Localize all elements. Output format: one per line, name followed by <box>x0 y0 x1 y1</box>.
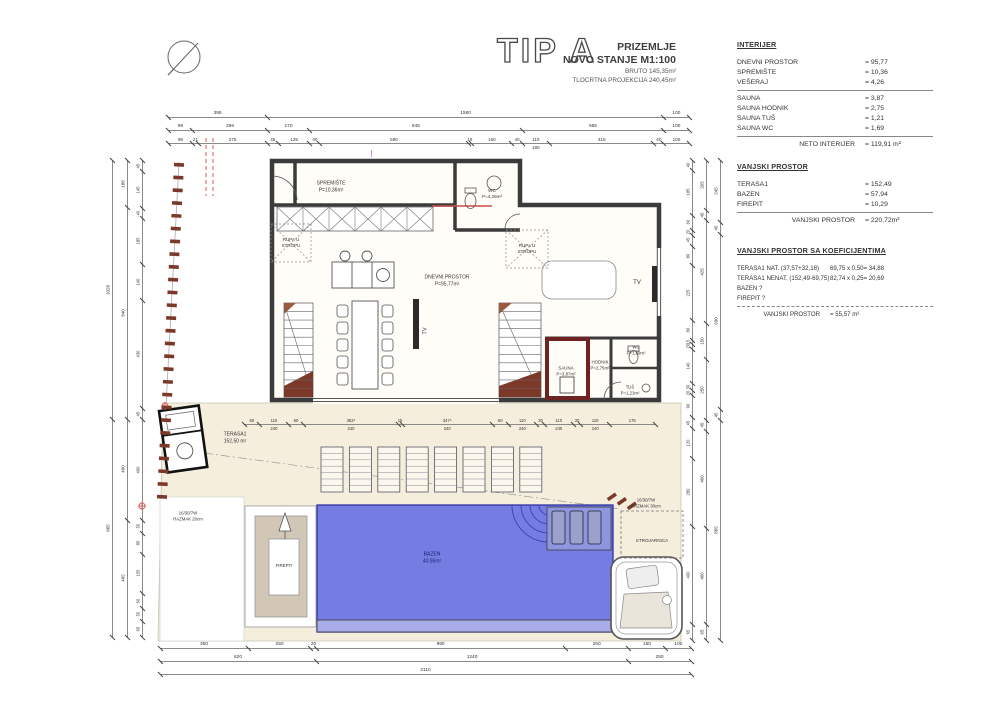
dim-label: 840 <box>121 309 126 317</box>
dim-label: 60 <box>294 418 299 423</box>
label-razmak-right: 16/30/7WRAZMAK 30cm <box>631 497 661 508</box>
bruto-label: BRUTO 145,35m² <box>478 68 676 77</box>
table-row: SPREMIŠTE= 10,36 <box>737 68 970 78</box>
dim-label: 150 <box>643 642 651 647</box>
label-line: P=3,87m² <box>556 371 575 377</box>
table-separator <box>737 212 933 213</box>
row-label: SAUNA WC <box>737 124 773 134</box>
table-row: SAUNA TUŠ= 1,21 <box>737 114 970 124</box>
row-value: = 152,49 <box>865 180 892 190</box>
label-line: HODNIK <box>590 359 609 365</box>
table-row: BAZEN= 57,94 <box>737 190 970 200</box>
row-label: NETO INTERIJER <box>737 140 855 150</box>
label-line: P=2,75m² <box>590 365 609 371</box>
row-label: FIREPIT <box>737 200 763 210</box>
dim-label: 155 <box>136 570 141 577</box>
dim-label: 80 <box>686 328 691 333</box>
boundary-tie <box>169 252 179 256</box>
label-rupa-u-stropu-left: RUPA USTROPU <box>282 237 301 249</box>
label-spremiste: SPREMIŠTEP=10,36m² <box>317 181 346 194</box>
table-header-interijer: INTERIJER <box>737 40 970 49</box>
row-label: VANJSKI PROSTOR <box>737 310 820 320</box>
row-value: = 55,57 m² <box>830 310 859 320</box>
dim-line-top-row-3 <box>168 143 689 144</box>
area-tables-panel: INTERIJERDNEVNI PROSTOR= 95,77SPREMIŠTE=… <box>737 40 970 320</box>
pool-lounger <box>552 511 565 544</box>
label-sauna: SAUNAP=3,87m² <box>556 365 575 376</box>
label-line: STROJARNICA <box>636 538 668 544</box>
label-line: DNEVNI PROSTOR <box>425 275 470 282</box>
table-koeficijenti: VANJSKI PROSTOR SA KOEFICIJENTIMATERASA1… <box>737 246 970 320</box>
dim-label: 110 <box>555 418 562 423</box>
dim-line-top-row-2 <box>168 130 689 131</box>
label-tv-middle: TV <box>422 327 429 334</box>
area-meta: BRUTO 145,35m² TLOCRTNA PROJEKCIJA 240,4… <box>478 68 676 85</box>
dim-label: 125 <box>290 137 298 142</box>
boundary-tie <box>170 239 180 243</box>
label-line: RAZMAK 30cm <box>631 503 661 509</box>
table-separator <box>737 136 933 137</box>
plan-subtitle: PRIZEMLJE NOVO STANJE M1:100 <box>538 41 676 66</box>
chair <box>382 339 393 351</box>
row-label: TERASA1 <box>737 180 768 190</box>
row-value: = 95,77 <box>865 58 888 68</box>
dim-label: 175 <box>629 418 636 423</box>
label-firepit: FIREPIT <box>276 563 293 569</box>
tv-right-wall <box>652 266 657 302</box>
dim-label: 100 <box>672 111 680 116</box>
row-label: BAZEN ? <box>737 284 762 294</box>
row-label: FIREPIT ? <box>737 294 765 304</box>
dim-label: 415 <box>598 137 606 142</box>
row-value: 82,74 x 0,25= 20,69 <box>830 274 884 284</box>
label-tv-right: TV <box>633 280 641 288</box>
dim-label: 45 <box>700 423 705 428</box>
chair <box>337 373 348 385</box>
label-line: BAZEN <box>423 552 441 559</box>
boundary-tie <box>163 367 173 371</box>
label-razmak-left: 16/30/7WRAZMAK 20cm <box>173 510 203 521</box>
label-line: P=10,36m² <box>317 187 346 194</box>
dim-line-left-outer <box>112 160 113 637</box>
table-vanjski: VANJSKI PROSTORTERASA1= 152,49BAZEN= 57,… <box>737 162 970 226</box>
dim-label: 65 <box>136 626 141 631</box>
boundary-tie <box>172 201 182 205</box>
dim-sublabel: 240 <box>444 426 451 431</box>
dim-label: 362⁵ <box>347 418 356 423</box>
dim-label: 350 <box>200 642 208 647</box>
dim-line-left-inner <box>142 160 143 637</box>
dim-label: 100 <box>673 137 681 142</box>
dim-label: 170 <box>285 124 293 129</box>
row-label: SPREMIŠTE <box>737 68 776 78</box>
dim-label: 45 <box>714 225 719 230</box>
label-terasa1: TERASA1152,50 m² <box>224 432 247 445</box>
label-strojarnica: STROJARNICA <box>636 538 668 544</box>
dim-label: 425 <box>700 268 705 275</box>
row-label: VEŠERAJ <box>737 78 768 88</box>
dim-label: 990 <box>437 642 445 647</box>
dim-label: 50 <box>136 612 141 617</box>
chair <box>382 356 393 368</box>
row-label: SAUNA HODNIK <box>737 104 788 114</box>
projection-label: TLOCRTNA PROJEKCIJA 240,45m² <box>478 77 676 86</box>
floor-label: PRIZEMLJE <box>538 41 676 54</box>
dim-label: 690 <box>714 318 719 326</box>
boundary-tie <box>164 354 174 358</box>
label-line: STROPU <box>282 243 301 249</box>
pool-lounger <box>570 511 583 544</box>
dim-sublabel: 240 <box>270 426 277 431</box>
boundary-tie <box>159 456 169 460</box>
row-label: TERASA1 NAT. (37,57+32,18) <box>737 264 819 274</box>
dim-label: 140 <box>686 362 691 369</box>
dim-label: 250 <box>656 655 664 660</box>
dim-label: 185 <box>136 238 141 245</box>
dim-sublabel: 240 <box>592 426 599 431</box>
dim-label: 140 <box>136 279 141 286</box>
table-row: VEŠERAJ= 4,26 <box>737 78 970 88</box>
chair <box>382 373 393 385</box>
dim-label: 400 <box>700 476 705 483</box>
boundary-tie <box>171 227 181 231</box>
sofa-rug <box>542 261 616 299</box>
dim-label: 85 <box>136 541 141 546</box>
table-row: DNEVNI PROSTOR= 95,77 <box>737 58 970 68</box>
dim-label: 620 <box>234 655 242 660</box>
dim-label: 45 <box>136 163 141 168</box>
dim-label: 110 <box>532 137 539 142</box>
row-value: 69,75 x 0,50= 34,88 <box>830 264 884 274</box>
boundary-tie <box>160 431 170 435</box>
dim-label: 400 <box>686 572 691 579</box>
dim-label: 50 <box>136 524 141 529</box>
boundary-tie <box>173 188 183 192</box>
dim-label: 100 <box>674 642 682 647</box>
table-row: NETO INTERIJER= 119,91 m² <box>737 140 970 150</box>
dim-label: 65 <box>700 630 705 635</box>
table-row: SAUNA= 3,87 <box>737 94 970 104</box>
table-row: BAZEN ? <box>737 284 970 294</box>
boundary-tie <box>168 278 178 282</box>
dim-label: 150 <box>700 338 705 345</box>
dim-label: 250 <box>276 642 284 647</box>
dim-line-top-row-1 <box>168 117 689 118</box>
dim-label: 160 <box>488 137 496 142</box>
row-value: = 57,94 <box>865 190 888 200</box>
row-label: VANJSKI PROSTOR <box>737 216 855 226</box>
boundary-tie <box>161 418 171 422</box>
outdoor-kitchen <box>159 406 207 473</box>
dim-label: 590 <box>390 137 398 142</box>
dim-label: 188 <box>121 180 126 188</box>
dim-line-right-middle <box>706 160 707 640</box>
pool-lounger <box>588 511 601 544</box>
dim-label: 1028 <box>106 285 111 295</box>
dim-label: 430 <box>136 350 141 357</box>
dim-label: 99 <box>178 137 183 142</box>
dim-label: 110 <box>519 418 526 423</box>
table-row: FIREPIT= 10,29 <box>737 200 970 210</box>
north-compass-icon <box>168 41 200 75</box>
label-bazen: BAZEN40,95m² <box>423 552 441 565</box>
dim-label: 120 <box>686 439 691 446</box>
label-line: P=95,77m² <box>425 281 470 288</box>
dim-label: 45 <box>136 411 141 416</box>
dim-sublabel: 190 <box>532 145 540 150</box>
dim-label: 205 <box>700 181 705 188</box>
row-value: = 2,75 <box>865 104 884 114</box>
label-line: P=1,21m² <box>621 390 640 396</box>
table-header-koeficijenti: VANJSKI PROSTOR SA KOEFICIJENTIMA <box>737 246 970 255</box>
dim-label: 565 <box>589 124 597 129</box>
label-line: FIREPIT <box>276 563 293 569</box>
row-label: BAZEN <box>737 190 760 200</box>
dim-label: 2110 <box>420 668 430 673</box>
dim-label: 1240 <box>467 655 478 660</box>
row-label: DNEVNI PROSTOR <box>737 58 798 68</box>
stairs-right <box>499 303 541 397</box>
row-value: = 1,69 <box>865 124 884 134</box>
boundary-tie <box>171 214 181 218</box>
boundary-tie <box>160 444 170 448</box>
dim-label: 80 <box>686 253 691 258</box>
dim-line-left-middle <box>127 160 128 637</box>
row-value: = 220,72m² <box>865 216 900 226</box>
dim-sublabel: 240 <box>519 426 526 431</box>
dim-label: 65 <box>686 630 691 635</box>
label-line: TV <box>633 280 641 288</box>
table-row: SAUNA HODNIK= 2,75 <box>737 104 970 114</box>
dim-sublabel: 240 <box>555 426 562 431</box>
boundary-tie <box>165 329 175 333</box>
label-tus: TUŠP=1,21m² <box>621 384 640 395</box>
row-value: = 3,87 <box>865 94 884 104</box>
table-separator <box>737 90 933 91</box>
boundary-tie <box>173 176 183 180</box>
dim-label: 400 <box>136 466 141 473</box>
drawing-canvas: TIP A PRIZEMLJE NOVO STANJE M1:100 BRUTO… <box>0 0 1000 707</box>
dim-line-bottom-row-3 <box>160 674 691 675</box>
table-row: VANJSKI PROSTOR= 55,57 m² <box>737 310 970 320</box>
dim-label: 90 <box>686 404 691 409</box>
row-label: SAUNA TUŠ <box>737 114 775 124</box>
dim-label: 225 <box>686 289 691 296</box>
dim-label: 395 <box>214 111 222 116</box>
row-value: = 10,29 <box>865 200 888 210</box>
dim-label: 865 <box>714 526 719 534</box>
boundary-tie <box>169 265 179 269</box>
row-label: TERASA1 NENAT. (152,49-69,75) <box>737 274 829 284</box>
dim-label: 347⁵ <box>443 418 452 423</box>
dim-label: 400 <box>121 466 126 474</box>
table-row: SAUNA WC= 1,69 <box>737 124 970 134</box>
dim-label: 60 <box>498 418 503 423</box>
boundary-tie <box>157 495 167 499</box>
dim-label: 275 <box>229 137 237 142</box>
red-reference-lines <box>206 138 213 196</box>
state-label: NOVO STANJE M1:100 <box>538 54 676 67</box>
dim-label: 110 <box>271 418 278 423</box>
label-rupa-u-stropu-right: RUPA USTROPU <box>518 243 537 255</box>
row-value: = 1,21 <box>865 114 884 124</box>
boundary-tie <box>167 290 177 294</box>
table-row: FIREPIT ? <box>737 294 970 304</box>
label-line: TERASA1 <box>224 432 247 439</box>
label-line: 152,50 m² <box>224 438 247 445</box>
label-wc-top: WCP=4,26m² <box>482 188 502 200</box>
dim-label: 45 <box>686 238 691 243</box>
dim-label: 60 <box>686 220 691 225</box>
dim-label: 245 <box>714 187 719 195</box>
label-line: STROPU <box>518 249 537 255</box>
table-row: VANJSKI PROSTOR= 220,72m² <box>737 216 970 226</box>
table-row: TERASA1= 152,49 <box>737 180 970 190</box>
label-line: 40,95m² <box>423 558 441 565</box>
dim-label: 60 <box>249 418 254 423</box>
dim-label: 145 <box>136 186 141 193</box>
boundary-tie <box>167 303 177 307</box>
dim-label: 296 <box>226 124 234 129</box>
row-label: SAUNA <box>737 94 760 104</box>
label-line: RUPA U <box>518 243 537 249</box>
label-line: TV <box>422 327 429 334</box>
label-line: SAUNA <box>556 365 575 371</box>
dim-line-terrace-middle <box>244 424 655 425</box>
hot-tub <box>611 557 682 639</box>
boundary-tie <box>162 393 172 397</box>
dim-line-right-outer <box>720 160 721 640</box>
chair <box>337 339 348 351</box>
dim-label: 280 <box>686 488 691 495</box>
row-value: = 4,26 <box>865 78 884 88</box>
label-line: SPREMIŠTE <box>317 181 346 188</box>
table-row: TERASA1 NENAT. (152,49-69,75)82,74 x 0,2… <box>737 274 970 284</box>
dim-label: 100 <box>672 124 680 129</box>
chair <box>337 356 348 368</box>
label-hodnik: HODNIKP=2,75m² <box>590 359 609 370</box>
boundary-tie <box>166 316 176 320</box>
dim-label: 45 <box>686 420 691 425</box>
dim-label: 60 <box>136 598 141 603</box>
dim-label: 99 <box>178 124 183 129</box>
dining-table <box>352 301 378 389</box>
chair <box>382 322 393 334</box>
label-line: P=1,69m² <box>627 350 646 356</box>
stairs-left <box>284 303 313 397</box>
dim-label: 250 <box>700 386 705 393</box>
dim-label: 865 <box>106 524 111 532</box>
boundary-tie <box>174 163 184 167</box>
row-value: = 119,91 m² <box>865 140 901 150</box>
table-interijer: INTERIJERDNEVNI PROSTOR= 95,77SPREMIŠTE=… <box>737 40 970 150</box>
boundary-tie <box>162 405 172 409</box>
label-line: RUPA U <box>282 237 301 243</box>
boundary-tie <box>163 380 173 384</box>
dim-label: 185 <box>686 189 691 196</box>
row-value: = 10,36 <box>865 68 888 78</box>
table-header-vanjski: VANJSKI PROSTOR <box>737 162 970 171</box>
chair <box>382 305 393 317</box>
dim-label: 110 <box>592 418 599 423</box>
boundary-tie <box>158 482 168 486</box>
dim-line-bottom-row-2 <box>160 661 691 662</box>
dim-label: 465 <box>121 575 126 583</box>
label-line: RAZMAK 20cm <box>173 516 203 522</box>
table-separator <box>737 306 933 307</box>
dim-sublabel: 240 <box>347 426 354 431</box>
label-sauna-wc: WCP=1,69m² <box>627 344 646 355</box>
boundary-tie <box>165 342 175 346</box>
dim-line-bottom-row-1 <box>160 648 691 649</box>
label-line: P=4,26m² <box>482 194 502 200</box>
label-dnevni-prostor: DNEVNI PROSTORP=95,77m² <box>425 275 470 288</box>
tv-partition <box>413 299 419 349</box>
dim-label: 845 <box>412 124 420 129</box>
chair <box>337 305 348 317</box>
chair <box>337 322 348 334</box>
dim-label: 400 <box>700 572 705 579</box>
table-row: TERASA1 NAT. (37,57+32,18)69,75 x 0,50= … <box>737 264 970 274</box>
dim-label: 250 <box>593 642 601 647</box>
swimming-pool <box>317 505 613 632</box>
dim-label: 1580 <box>460 111 471 116</box>
boundary-tie <box>158 469 168 473</box>
